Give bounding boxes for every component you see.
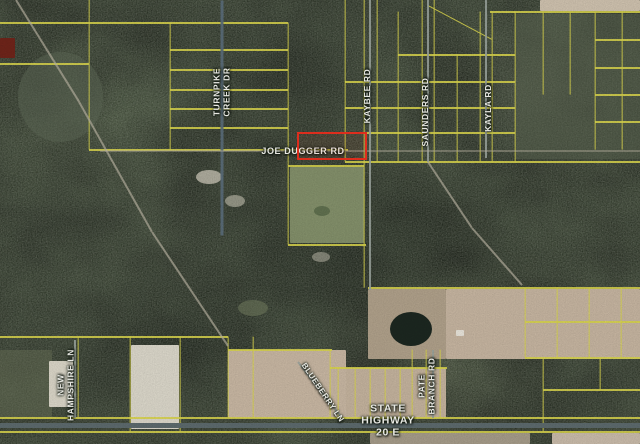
road-line (485, 0, 487, 158)
parcel-boundary-line (0, 336, 228, 337)
parcel-boundary-line (129, 337, 130, 432)
parcel-boundary-line (288, 244, 366, 245)
parcel-boundary-line (0, 431, 640, 432)
field-bottom-right (446, 289, 640, 359)
aerial-map-view[interactable]: TURNPIKECREEK DRJOE DUGGER RDKAYBEE RDSA… (0, 0, 640, 444)
parcel-boundary-line (287, 23, 288, 245)
field-top-right (540, 0, 640, 11)
parcel-boundary-line (599, 358, 600, 390)
road-label-text: KAYLA RD (484, 84, 494, 132)
grass-parcel (290, 167, 364, 243)
light-terrain (0, 350, 52, 418)
parcel-boundary-line (227, 337, 228, 418)
clearing (312, 252, 330, 262)
road-line (221, 0, 224, 235)
trail-line (471, 227, 522, 285)
road-label-text: KAYBEE RD (363, 69, 373, 124)
parcel-boundary-line (354, 368, 355, 418)
road-label-text: 20 E (361, 427, 414, 439)
structure (456, 330, 464, 336)
parcel-boundary-line (252, 337, 253, 418)
clearing (225, 195, 245, 207)
parcel-boundary-line (433, 0, 434, 162)
parcel-boundary-line (490, 11, 640, 12)
parcel-boundary-line (428, 5, 493, 40)
pond-small (314, 206, 330, 216)
parcel-boundary-line (0, 22, 288, 23)
map-features-layer: TURNPIKECREEK DRJOE DUGGER RDKAYBEE RDSA… (0, 0, 640, 444)
road-label-text: CREEK DR (222, 67, 232, 116)
road-label-kaybee-rd: KAYBEE RD (363, 69, 373, 124)
field-below-highway (552, 433, 640, 444)
road-label-new-hampshire-ln: NEWHAMPSHIRE LN (56, 349, 75, 421)
parcel-boundary-line (595, 121, 640, 122)
parcel-boundary-line (0, 63, 89, 64)
parcel-boundary-line (88, 0, 89, 150)
road-label-kayla-rd: KAYLA RD (484, 84, 494, 132)
parcel-boundary-line (288, 165, 364, 166)
parcel-boundary-line (595, 94, 640, 95)
parcel-boundary-line (514, 12, 515, 162)
parcel-boundary-line (439, 350, 440, 418)
parcel-boundary-line (179, 337, 180, 432)
parcel-boundary-line (556, 288, 557, 358)
road-label-text: STATE (361, 403, 414, 415)
highway-line (0, 423, 640, 428)
trail-line (77, 100, 153, 233)
parcel-boundary-line (595, 67, 640, 68)
parcel-boundary-line (376, 0, 377, 162)
light-terrain (18, 52, 103, 142)
parcel-boundary-line (170, 49, 288, 50)
red-roof-structure (0, 38, 15, 58)
trail-line (427, 161, 473, 228)
parcel-boundary-line (595, 39, 640, 40)
parcel-boundary-line (169, 23, 170, 150)
parcel-boundary-line (588, 288, 589, 358)
parcel-boundary-line (620, 288, 621, 358)
parcel-boundary-line (542, 358, 543, 432)
parcel-boundary-line (0, 417, 640, 418)
parcel-boundary-line (621, 12, 622, 150)
trail-line (151, 231, 229, 346)
road-label-text: BRANCH RD (427, 358, 437, 415)
clearing (238, 300, 268, 316)
parcel-boundary-line (456, 55, 457, 162)
road-label-state-highway-20-e: STATEHIGHWAY20 E (361, 403, 414, 438)
road-label-text: HAMPSHIRE LN (66, 349, 76, 421)
parcel-boundary-line (594, 12, 595, 150)
parcel-boundary-line (77, 337, 78, 418)
parcel-boundary-line (170, 127, 288, 128)
parcel-boundary-line (368, 287, 640, 288)
road-line (369, 0, 371, 290)
parcel-boundary-line (228, 349, 332, 350)
clearing (196, 170, 222, 184)
parcel-boundary-line (543, 389, 640, 390)
highlighted-parcel[interactable] (297, 132, 367, 160)
road-label-pate-branch-rd: PATEBRANCH RD (417, 358, 436, 415)
parcel-boundary-line (542, 12, 543, 95)
trail-line (100, 150, 640, 152)
road-label-text: HIGHWAY (361, 415, 414, 427)
road-label-text: SAUNDERS RD (421, 78, 431, 147)
parcel-boundary-line (524, 288, 525, 358)
parcel-boundary-line (397, 12, 398, 162)
road-label-saunders-rd: SAUNDERS RD (421, 78, 431, 147)
pond (390, 312, 432, 346)
parcel-boundary-line (525, 321, 640, 322)
road-label-turnpike-creek-dr: TURNPIKECREEK DR (212, 67, 231, 116)
parcel-boundary-line (569, 12, 570, 95)
